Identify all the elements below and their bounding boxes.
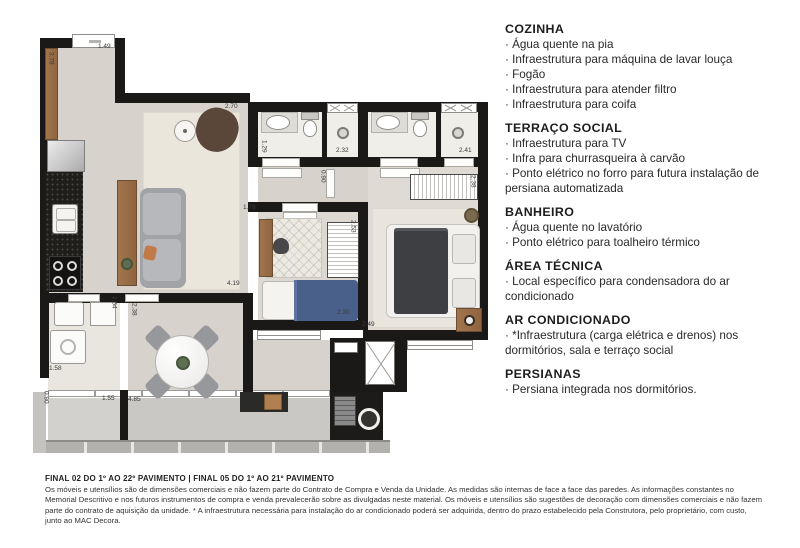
spec-section: COZINHA· Água quente na pia· Infraestrut…	[505, 21, 787, 112]
bath2-sink	[376, 115, 400, 130]
dimension-label: 2.49	[362, 322, 375, 329]
terrace-railing	[40, 440, 390, 453]
spec-item: · Infraestrutura para máquina de lavar l…	[505, 52, 787, 67]
floor-plan: 1.493.782.701.292.322.410.902.381.782.53…	[0, 0, 500, 470]
bed-double-duvet	[394, 228, 448, 314]
spec-item: · *Infraestrutura (carga elétrica e dren…	[505, 328, 787, 358]
shower-head	[452, 127, 464, 139]
spec-section-title: BANHEIRO	[505, 204, 787, 220]
spec-section: BANHEIRO· Água quente no lavatório· Pont…	[505, 204, 787, 250]
terrace-service-floor	[48, 398, 120, 440]
spec-item: · Infraestrutura para coifa	[505, 97, 787, 112]
washer	[50, 330, 86, 364]
dimension-label: 3.78	[47, 52, 54, 65]
footer-title: FINAL 02 DO 1º AO 22º PAVIMENTO | FINAL …	[45, 474, 763, 483]
suite-bench	[456, 308, 482, 332]
spec-item: · Ponto elétrico para toalheiro térmico	[505, 235, 787, 250]
dimension-label: 2.53	[349, 220, 356, 233]
bath1-sink	[266, 115, 290, 130]
table-plant	[176, 356, 190, 370]
pillow	[452, 278, 476, 308]
door-corridor	[326, 169, 335, 198]
spec-section: ÁREA TÉCNICA· Local específico para cond…	[505, 258, 787, 304]
wall	[120, 93, 250, 103]
sofa	[140, 188, 186, 288]
stove	[49, 256, 81, 290]
dimension-label: 4.19	[227, 281, 240, 288]
door-bath1	[262, 158, 300, 167]
wall	[243, 293, 253, 392]
window-suite	[407, 340, 473, 350]
side-table	[174, 120, 196, 142]
door-living-dining	[68, 294, 100, 302]
wall	[358, 202, 368, 330]
door-bedroom1	[282, 203, 318, 212]
dining-table	[155, 335, 209, 389]
dimension-label: 2.38	[469, 175, 476, 188]
dimension-label: 1.78	[243, 205, 256, 212]
toilet	[301, 112, 319, 120]
terrace-divider-wall	[120, 390, 128, 440]
plant	[121, 258, 133, 270]
dimension-label: 1.49	[98, 44, 111, 51]
window-bedroom1	[257, 330, 321, 340]
spec-section-title: AR CONDICIONADO	[505, 312, 787, 328]
spec-item: · Fogão	[505, 67, 787, 82]
door-dining	[125, 294, 159, 302]
terrace-sink	[358, 408, 380, 430]
fridge	[47, 140, 85, 172]
door-bath2	[380, 158, 418, 167]
desk	[259, 219, 273, 277]
spec-item: · Persiana integrada nos dormitórios.	[505, 382, 787, 397]
technical-area	[365, 341, 395, 385]
dimension-label: 1.54	[110, 296, 117, 309]
footer: FINAL 02 DO 1º AO 22º PAVIMENTO | FINAL …	[45, 474, 763, 526]
footer-body: Os móveis e utensílios são de dimensões …	[45, 485, 763, 526]
window-shower2	[441, 103, 477, 113]
dimension-label: 2.32	[336, 148, 349, 155]
spec-item: · Local específico para condensadora do …	[505, 274, 787, 304]
toilet	[411, 112, 429, 120]
spec-item: · Infraestrutura para atender filtro	[505, 82, 787, 97]
pillow	[452, 234, 476, 264]
spec-section-title: COZINHA	[505, 21, 787, 37]
spec-section-title: PERSIANAS	[505, 366, 787, 382]
wall	[248, 320, 367, 330]
barbecue-grill	[334, 396, 356, 426]
toilet-bowl	[413, 120, 427, 137]
dimension-label: 2.38	[130, 303, 137, 316]
tv-console	[117, 180, 137, 286]
spec-section: TERRAÇO SOCIAL· Infraestrutura para TV· …	[505, 120, 787, 196]
toilet-bowl	[303, 120, 317, 137]
dimension-label: 1.55	[102, 396, 115, 403]
passage-floor	[253, 340, 330, 392]
dimension-label: 2.70	[225, 104, 238, 111]
dimension-label: 0.90	[319, 170, 326, 183]
dimension-label: 1.29	[260, 140, 267, 153]
shower-partition	[436, 112, 441, 157]
spec-item: · Água quente na pia	[505, 37, 787, 52]
spec-item: · Infra para churrasqueira à carvão	[505, 151, 787, 166]
wardrobe-suite	[410, 174, 478, 200]
dimension-label: 2.41	[459, 148, 472, 155]
window-shower1	[327, 103, 358, 113]
bed-single-pillow	[262, 281, 296, 320]
spec-item: · Infraestrutura para TV	[505, 136, 787, 151]
shower-partition	[322, 112, 327, 157]
spec-section-title: ÁREA TÉCNICA	[505, 258, 787, 274]
door-bath1-leaf	[262, 168, 302, 178]
kitchen-sink	[52, 204, 78, 234]
dimension-label: 4.85	[128, 397, 141, 404]
spec-section: PERSIANAS· Persiana integrada nos dormit…	[505, 366, 787, 397]
desk-chair	[273, 238, 289, 254]
spec-section: AR CONDICIONADO· *Infraestrutura (carga …	[505, 312, 787, 358]
door-suite	[444, 158, 474, 167]
dimension-label: 1.58	[49, 366, 62, 373]
laundry-tank	[54, 302, 84, 326]
brochure-page: 1.493.782.701.292.322.410.902.381.782.53…	[0, 0, 800, 548]
plant	[464, 208, 479, 223]
terrace-tray	[240, 392, 288, 412]
wall-niche	[334, 342, 358, 353]
spec-item: · Água quente no lavatório	[505, 220, 787, 235]
shower-head	[337, 127, 349, 139]
spec-item: · Ponto elétrico no forro para futura in…	[505, 166, 787, 196]
dimension-label: 0.90	[42, 391, 49, 404]
spec-panel: COZINHA· Água quente na pia· Infraestrut…	[505, 21, 787, 405]
spec-section-title: TERRAÇO SOCIAL	[505, 120, 787, 136]
dimension-label: 2.30	[337, 310, 350, 317]
